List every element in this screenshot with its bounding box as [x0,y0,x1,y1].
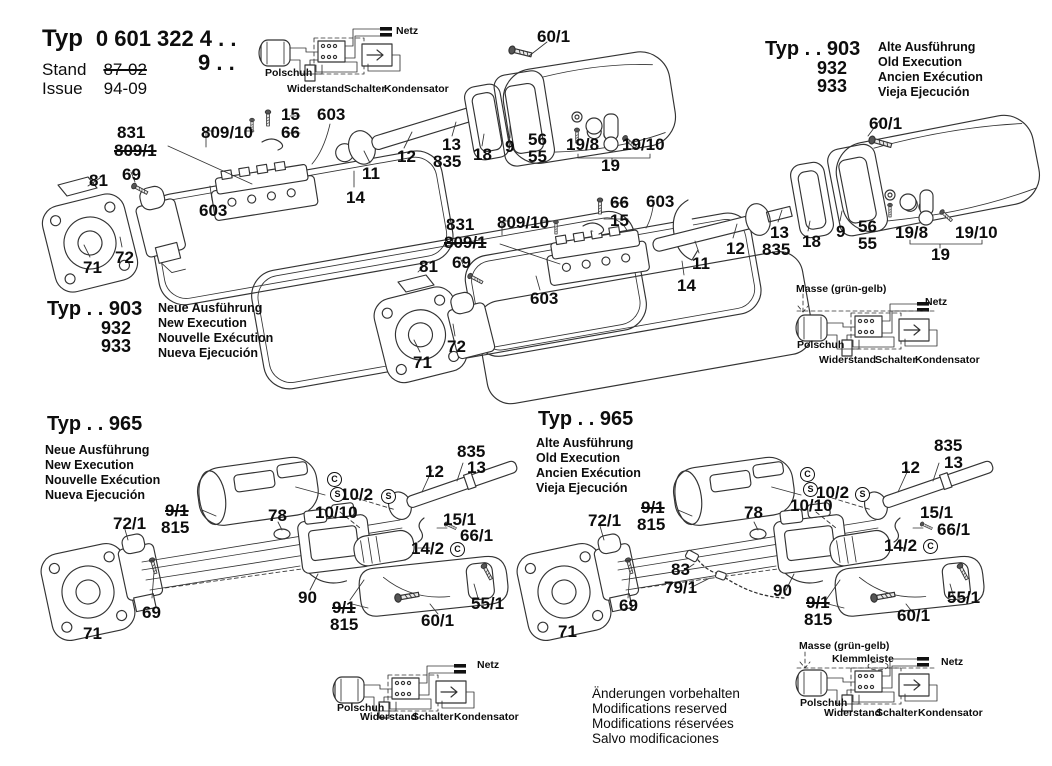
part-label-12: 12 [397,148,416,166]
typ965-new-title: Typ . . 965 [47,414,142,434]
lang-line: Alte Ausführung [878,40,983,55]
header-stand-row: Stand87-02 [42,61,147,78]
typ903-old-title: Typ . . 903 [765,39,860,59]
part-label-831: 831 [446,216,474,234]
part-label-815: 815 [161,519,189,537]
typ965-old-languages: Alte Ausführung Old Execution Ancien Exé… [536,436,641,496]
typ965-new-languages: Neue Ausführung New Execution Nouvelle E… [45,443,160,503]
part-label-10-10: 10/10 [315,504,358,522]
part-label-60-1: 60/1 [869,115,902,133]
schematic-label-klemmleiste: Klemmleiste [832,654,894,666]
stand-label: Stand [42,60,86,79]
schematic-label-widerstand: Widerstand [360,712,417,724]
schematic-label-schalter: Schalter [876,708,917,720]
part-label-66: 66 [281,124,300,142]
part-label-603: 603 [199,202,227,220]
circled-letter-s: S [381,489,396,504]
part-label-14-2: 14/2 [411,540,444,558]
issue-label: Issue [42,79,83,98]
part-label-18: 18 [473,146,492,164]
part-label-18: 18 [802,233,821,251]
part-label-15: 15 [281,106,300,124]
part-label-55-1: 55/1 [471,595,504,613]
schematic-label-masse-grün-gelb-: Masse (grün-gelb) [796,284,886,296]
schematic-label-masse-grün-gelb-: Masse (grün-gelb) [799,641,889,653]
part-label-12: 12 [425,463,444,481]
part-label-815: 815 [330,616,358,634]
part-label-603: 603 [530,290,558,308]
lang-line: Vieja Ejecución [878,85,983,100]
part-label-14: 14 [677,277,696,295]
part-label-815: 815 [804,611,832,629]
header-typ-number: 0 601 322 [96,26,194,51]
lang-line: New Execution [45,458,160,473]
part-label-71: 71 [413,354,432,372]
lang-line: Vieja Ejecución [536,481,641,496]
schematic-label-widerstand: Widerstand [824,708,881,720]
part-label-90: 90 [773,582,792,600]
part-label-60-1: 60/1 [421,612,454,630]
part-label-66-1: 66/1 [460,527,493,545]
part-label-815: 815 [637,516,665,534]
circled-letter-c: C [327,472,342,487]
lang-line: Ancien Exécution [878,70,983,85]
part-label-13: 13 [944,454,963,472]
schematic-label-netz: Netz [396,26,418,38]
part-label-72: 72 [115,249,134,267]
part-label-19-10: 19/10 [955,224,998,242]
lang-line: Nouvelle Exécution [158,331,273,346]
schematic-label-kondensator: Kondensator [384,84,449,96]
part-label-69: 69 [142,604,161,622]
part-label-809-1: 809/1 [444,234,487,252]
circled-letter-c: C [800,467,815,482]
schematic-label-schalter: Schalter [412,712,453,724]
schematic-label-widerstand: Widerstand [819,355,876,367]
typ903-new-languages: Neue Ausführung New Execution Nouvelle E… [158,301,273,361]
part-label-69: 69 [619,597,638,615]
typ903-new-variant-933: 933 [101,337,131,355]
parts-diagram-page: Typ0 601 3224 . . 9 . . Stand87-02 Issue… [0,0,1052,766]
part-label-19-8: 19/8 [895,224,928,242]
part-label-71: 71 [558,623,577,641]
schematic-label-kondensator: Kondensator [915,355,980,367]
part-label-19-8: 19/8 [566,136,599,154]
lang-line: Neue Ausführung [158,301,273,316]
part-label-81: 81 [419,258,438,276]
part-label-66: 66 [610,194,629,212]
modifications-note: Änderungen vorbehalten Modifications res… [592,686,740,746]
schematic-label-schalter: Schalter [344,84,385,96]
part-label-809-10: 809/10 [201,124,253,142]
part-label-603: 603 [646,193,674,211]
part-label-78: 78 [744,504,763,522]
part-label-10-2: 10/2 [816,484,849,502]
part-label-9: 9 [505,138,514,156]
schematic-label-netz: Netz [941,657,963,669]
part-label-19: 19 [601,157,620,175]
lang-line: Neue Ausführung [45,443,160,458]
footer-line: Modifications reserved [592,701,740,716]
typ965-old-title: Typ . . 965 [538,409,633,429]
typ903-new-variant-932: 932 [101,319,131,337]
schematic-label-schalter: Schalter [875,355,916,367]
part-label-69: 69 [122,166,141,184]
circled-letter-s: S [855,487,870,502]
part-label-71: 71 [83,259,102,277]
circled-letter-c: C [450,542,465,557]
schematic-label-kondensator: Kondensator [918,708,983,720]
lang-line: Old Execution [536,451,641,466]
part-label-66-1: 66/1 [937,521,970,539]
lang-line: Old Execution [878,55,983,70]
schematic-label-polschuh: Polschuh [797,340,844,352]
header-typ-suffix2: 9 . . [198,52,235,74]
schematic-label-netz: Netz [925,297,947,309]
part-label-55-1: 55/1 [947,589,980,607]
part-label-831: 831 [117,124,145,142]
part-label-60-1: 60/1 [897,607,930,625]
footer-line: Salvo modificaciones [592,731,740,746]
stand-value: 87-02 [103,60,146,79]
part-label-12: 12 [901,459,920,477]
issue-value: 94-09 [104,79,147,98]
part-label-809-1: 809/1 [114,142,157,160]
part-label-835: 835 [433,153,461,171]
part-label-71: 71 [83,625,102,643]
part-label-55: 55 [858,235,877,253]
schematic-label-netz: Netz [477,660,499,672]
part-label-72: 72 [447,338,466,356]
part-label-14-2: 14/2 [884,537,917,555]
part-label-79-1: 79/1 [664,579,697,597]
typ903-new-title: Typ . . 903 [47,299,142,319]
schematic-label-widerstand: Widerstand [287,84,344,96]
part-label-83: 83 [671,561,690,579]
part-label-13: 13 [467,459,486,477]
part-label-19: 19 [931,246,950,264]
header-issue-row: Issue94-09 [42,80,147,97]
typ903-old-variant-933: 933 [817,77,847,95]
schematic-label-kondensator: Kondensator [454,712,519,724]
part-label-78: 78 [268,507,287,525]
part-label-11: 11 [692,255,710,273]
part-label-69: 69 [452,254,471,272]
circled-letter-s: S [330,487,345,502]
part-label-9: 9 [836,223,845,241]
schematic-label-polschuh: Polschuh [265,68,312,80]
part-label-14: 14 [346,189,365,207]
lang-line: Nouvelle Exécution [45,473,160,488]
part-label-19-10: 19/10 [622,136,665,154]
lang-line: Nueva Ejecución [158,346,273,361]
part-label-72-1: 72/1 [113,515,146,533]
part-label-12: 12 [726,240,745,258]
part-label-15: 15 [610,212,629,230]
part-label-90: 90 [298,589,317,607]
lang-line: Nueva Ejecución [45,488,160,503]
part-label-11: 11 [362,165,380,183]
part-label-603: 603 [317,106,345,124]
part-label-809-10: 809/10 [497,214,549,232]
part-label-81: 81 [89,172,108,190]
footer-line: Änderungen vorbehalten [592,686,740,701]
header-typ-line: Typ0 601 3224 . . [42,27,236,51]
lang-line: New Execution [158,316,273,331]
header-typ-suffix1: 4 . . [200,26,237,51]
header-typ-label: Typ [42,25,83,52]
lang-line: Ancien Exécution [536,466,641,481]
part-label-72-1: 72/1 [588,512,621,530]
lang-line: Alte Ausführung [536,436,641,451]
typ903-old-variant-932: 932 [817,59,847,77]
part-label-55: 55 [528,148,547,166]
footer-line: Modifications réservées [592,716,740,731]
circled-letter-c: C [923,539,938,554]
part-label-835: 835 [762,241,790,259]
part-label-60-1: 60/1 [537,28,570,46]
circled-letter-s: S [803,482,818,497]
typ903-old-languages: Alte Ausführung Old Execution Ancien Exé… [878,40,983,100]
